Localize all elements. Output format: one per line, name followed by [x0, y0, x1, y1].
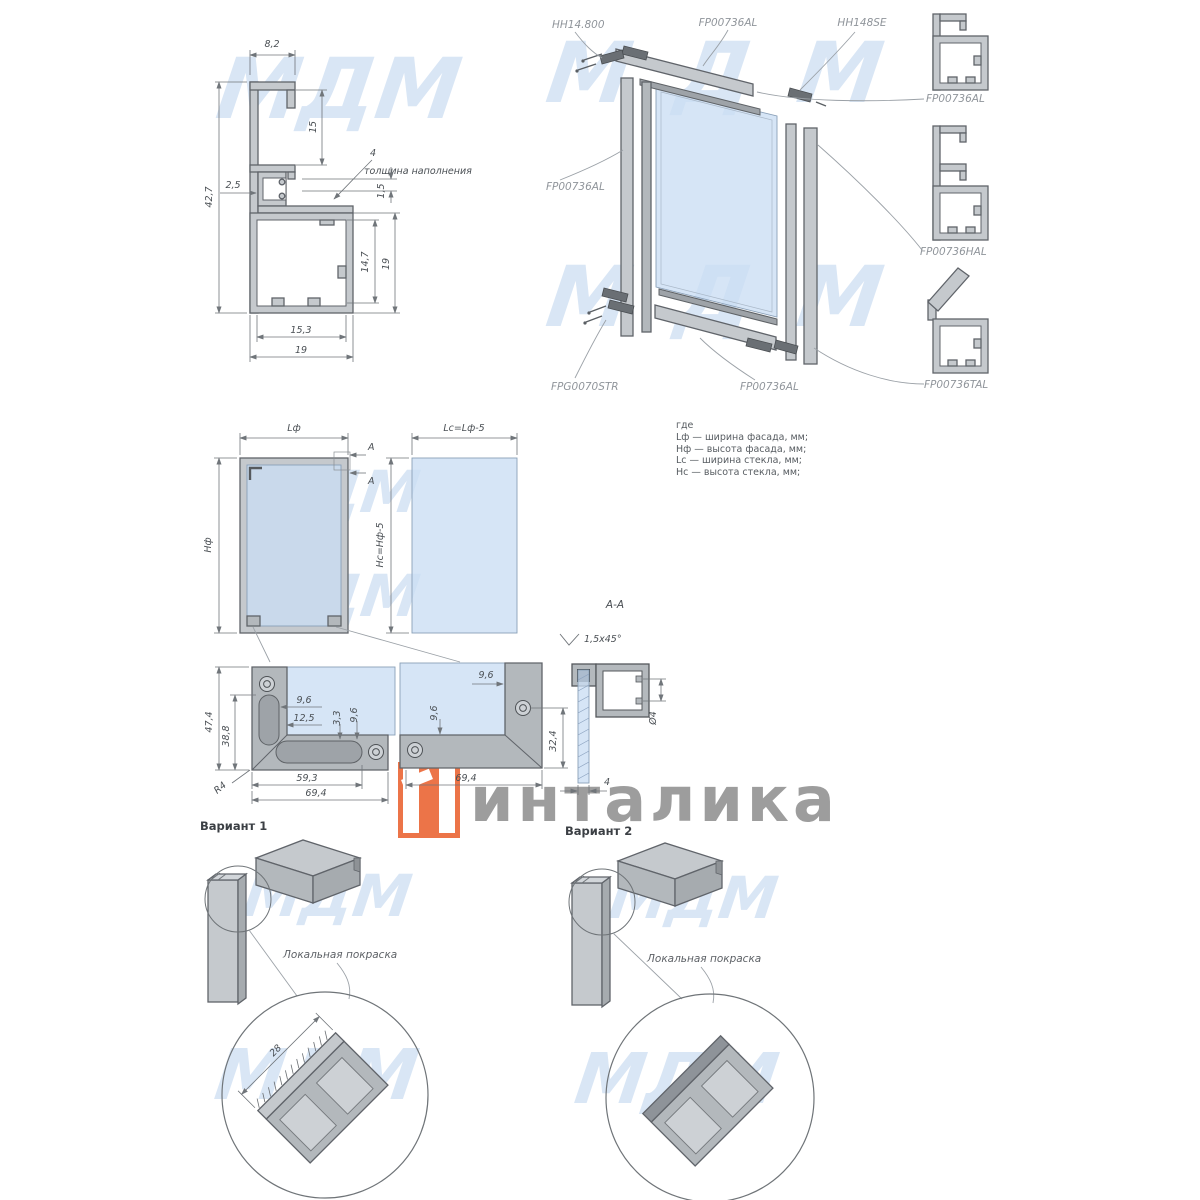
profile-mid-lip [288, 172, 295, 179]
leader [249, 930, 297, 996]
legend-block: где Lф — ширина фасада, мм; Нф — высота … [676, 420, 808, 479]
frame-views: Lф Нф A A Lc=Lф-5 Нс=Нф-5 [203, 423, 517, 662]
variant2-title: Вариант 2 [565, 824, 632, 838]
dim-inner-h: 14,7 [360, 251, 371, 272]
notch [948, 227, 957, 233]
dim-inner-w: 15,3 [290, 325, 311, 336]
dim-dia4: Ø4 [648, 711, 659, 726]
slanted-arm [928, 268, 969, 311]
screw-head [369, 745, 384, 760]
chamfer-symbol [560, 634, 579, 645]
arm [940, 164, 966, 171]
label-hinge: HH14.800 [552, 19, 605, 31]
paint-note: Локальная покраска [646, 953, 761, 965]
notch [966, 360, 975, 366]
screw-nub [636, 676, 642, 682]
legend-line: Lc — ширина стекла, мм; [676, 455, 808, 467]
label-left-profile: FP00736AL [546, 181, 605, 193]
screw [516, 701, 531, 716]
screw [369, 745, 384, 760]
drawing-page: МДМ МДМ МДМ МДМ МДМ МДМ МДМ МДМ МДМ инта… [0, 0, 1200, 1200]
dim-9-6-left: 9,6 [429, 705, 440, 720]
screw [408, 743, 423, 758]
milled-slot-horizontal [276, 741, 362, 763]
dim-69-4: 69,4 [455, 773, 476, 784]
variant1-title: Вариант 1 [200, 819, 267, 833]
dim-box-h: 19 [381, 258, 392, 270]
screw-head [408, 743, 423, 758]
connector-pin [584, 54, 602, 60]
screw-head [260, 677, 275, 692]
dim-28: 28 [268, 1043, 284, 1059]
ext-lines [250, 50, 295, 75]
dim-9-6b: 9,6 [349, 707, 360, 722]
corner-detail-right: 9,6 9,6 32,4 69,4 [400, 663, 568, 789]
leader [703, 30, 728, 66]
leader [232, 770, 250, 783]
corner-fitting [247, 616, 260, 626]
profile-fp00736hal: FP00736HAL [920, 126, 988, 258]
box-boss [338, 266, 346, 278]
profile-bar-side [602, 877, 610, 1007]
profile-mid-arm [250, 165, 295, 172]
dim-3-3: 3,3 [332, 710, 343, 725]
dim-glass-thickness: 4 [604, 777, 610, 788]
screw [260, 677, 275, 692]
chamfer-note: 1,5x45° [584, 634, 622, 645]
endcap-notch [354, 858, 360, 872]
arm [940, 14, 966, 21]
profile-body [651, 1044, 773, 1166]
dim-r4: R4 [212, 780, 229, 797]
dim-69-4: 69,4 [305, 788, 326, 799]
profile-fp00736al: FP00736AL [926, 14, 988, 105]
glass-pane-view [412, 458, 517, 633]
section-mark-a: A [367, 476, 375, 487]
ext-lines [240, 433, 348, 455]
profile-cross-section: 8,2 42,7 2,5 15 4 толщина наполнения 1,5… [204, 39, 472, 362]
label-top-profile: FP00736AL [699, 17, 758, 29]
arm [940, 126, 966, 133]
connector-pin [586, 316, 602, 322]
pin-head [575, 69, 578, 72]
lip [960, 133, 966, 142]
dim-groove: 15 [308, 121, 319, 133]
ext-lines [386, 458, 409, 633]
corner-connector [788, 88, 812, 102]
connector-pin [578, 64, 596, 70]
dim-box-w: 19 [295, 345, 307, 356]
profile-end-view: 28 [233, 1008, 388, 1163]
box-bump [320, 220, 334, 225]
label-seal: HH148SE [837, 17, 886, 29]
legend-intro: где [676, 420, 808, 432]
dim-lip: 1,5 [376, 183, 387, 198]
variant-1: Вариант 1 Локальная покраска 28 [200, 819, 428, 1198]
section-aa: A-A 1,5x45° Ø4 4 [560, 599, 666, 795]
boss [974, 56, 981, 65]
ext-lines [578, 785, 589, 795]
leader [818, 145, 922, 250]
glass-strip [578, 670, 589, 783]
screw-nub [636, 698, 642, 704]
frame-glass [247, 465, 341, 626]
left-bead [642, 82, 651, 332]
right-stile [804, 128, 817, 364]
dim-59-3: 59,3 [296, 773, 317, 784]
ext-lines [215, 82, 247, 313]
glass-panel [656, 86, 777, 317]
leader [613, 933, 682, 999]
box-notch [272, 298, 284, 306]
profiles-panel: FP00736AL FP00736HAL [920, 14, 988, 391]
dim-9-6: 9,6 [296, 695, 311, 706]
leader [701, 967, 714, 1003]
dim-wall: 2,5 [225, 180, 240, 191]
label-profile-hal: FP00736HAL [920, 246, 987, 258]
dim-glass-height: Нс=Нф-5 [375, 522, 386, 567]
lip [960, 21, 966, 30]
dim-glass-width: Lc=Lф-5 [443, 423, 484, 434]
profile-shelf [258, 206, 353, 213]
dim-9-6-top: 9,6 [478, 670, 493, 681]
dim-facade-height: Нф [203, 537, 214, 552]
leader [814, 348, 924, 384]
section-title: A-A [605, 599, 624, 611]
label-profile-al: FP00736AL [926, 93, 985, 105]
milled-slot-vertical [259, 695, 279, 745]
dim-47-4: 47,4 [204, 711, 215, 732]
section-mark-a: A [367, 442, 375, 453]
ext-lines [412, 433, 517, 455]
ext-lines [215, 667, 249, 770]
boss [974, 339, 981, 348]
profile-top-arm [250, 82, 295, 90]
profile-body [266, 1041, 388, 1163]
lip [960, 171, 966, 180]
drawing-canvas: 8,2 42,7 2,5 15 4 толщина наполнения 1,5… [0, 0, 1200, 1200]
dim-38-8: 38,8 [221, 725, 232, 746]
channel-nub [279, 179, 285, 185]
dim-fill-thickness: 4 [370, 148, 376, 159]
profile-bar-front [572, 883, 602, 1005]
right-bead [786, 124, 796, 360]
leader [575, 32, 602, 58]
endcap-notch [716, 861, 722, 875]
notch [948, 77, 957, 83]
label-gasket: FPG0070STR [551, 381, 619, 393]
paint-note: Локальная покраска [282, 949, 397, 961]
connector-pin [816, 102, 826, 106]
legend-line: Нс — высота стекла, мм; [676, 467, 808, 479]
dim-12-5: 12,5 [293, 713, 314, 724]
boss [974, 206, 981, 215]
box-notch [308, 298, 320, 306]
profile-bar-front [208, 880, 238, 1002]
corner-detail-left: 47,4 38,8 9,6 12,5 3,3 9,6 59,3 69,4 R4 [204, 667, 395, 804]
notch [966, 77, 975, 83]
channel-nub [279, 193, 285, 199]
dim-facade-width: Lф [287, 423, 300, 434]
leader [757, 92, 924, 101]
leader [800, 32, 855, 90]
profile-fp00736tal: FP00736TAL [924, 268, 988, 391]
screw-head [516, 701, 531, 716]
pin-head [587, 311, 590, 314]
legend-line: Lф — ширина фасада, мм; [676, 432, 808, 444]
fill-note: толщина наполнения [364, 166, 472, 177]
profile-end-view [643, 1036, 773, 1166]
leader [575, 320, 606, 378]
notch [966, 227, 975, 233]
leader [560, 150, 623, 180]
legend-line: Нф — высота фасада, мм; [676, 444, 808, 456]
profile-top-lip [287, 90, 295, 108]
corner-fitting [328, 616, 341, 626]
frame-assembly: HH14.800 FP00736AL HH148SE FP00736AL FPG… [546, 17, 924, 393]
notch [948, 360, 957, 366]
ext-lines [214, 458, 237, 633]
profile-bar-side [238, 874, 246, 1004]
variant-2: Вариант 2 Локальная покраска [565, 824, 814, 1200]
dim-32-4: 32,4 [548, 730, 559, 751]
label-profile-tal: FP00736TAL [924, 379, 988, 391]
connector-pin [590, 306, 606, 312]
pin-head [581, 59, 584, 62]
label-bottom-profile: FP00736AL [740, 381, 799, 393]
profile-box-hollow [257, 220, 346, 306]
pin-head [583, 321, 586, 324]
dim-top-width: 8,2 [264, 39, 279, 50]
dim-height: 42,7 [204, 186, 215, 207]
